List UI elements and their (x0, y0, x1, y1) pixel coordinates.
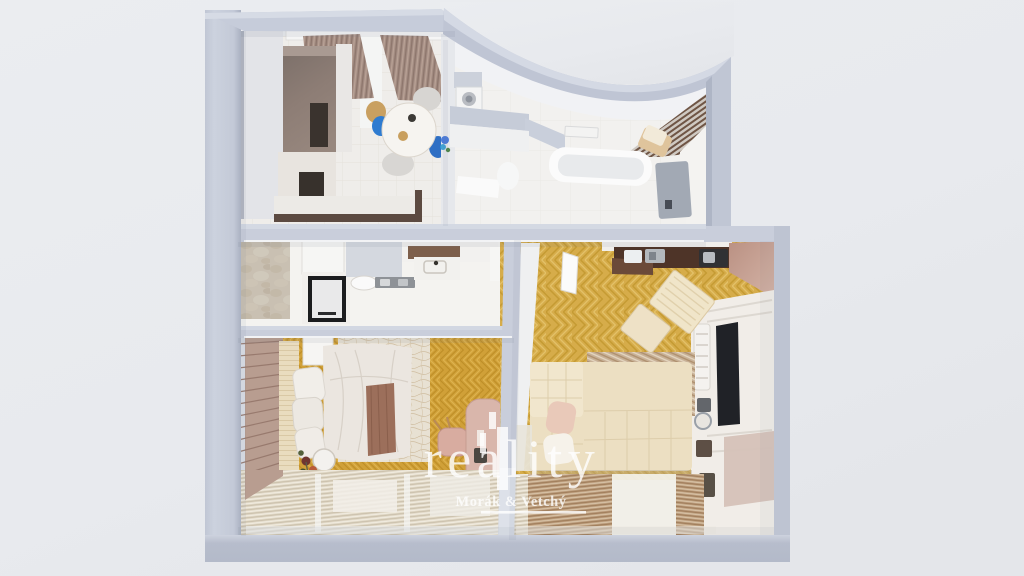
svg-text:reality: reality (424, 429, 600, 489)
svg-text:Morák & Vetchý: Morák & Vetchý (456, 494, 567, 510)
